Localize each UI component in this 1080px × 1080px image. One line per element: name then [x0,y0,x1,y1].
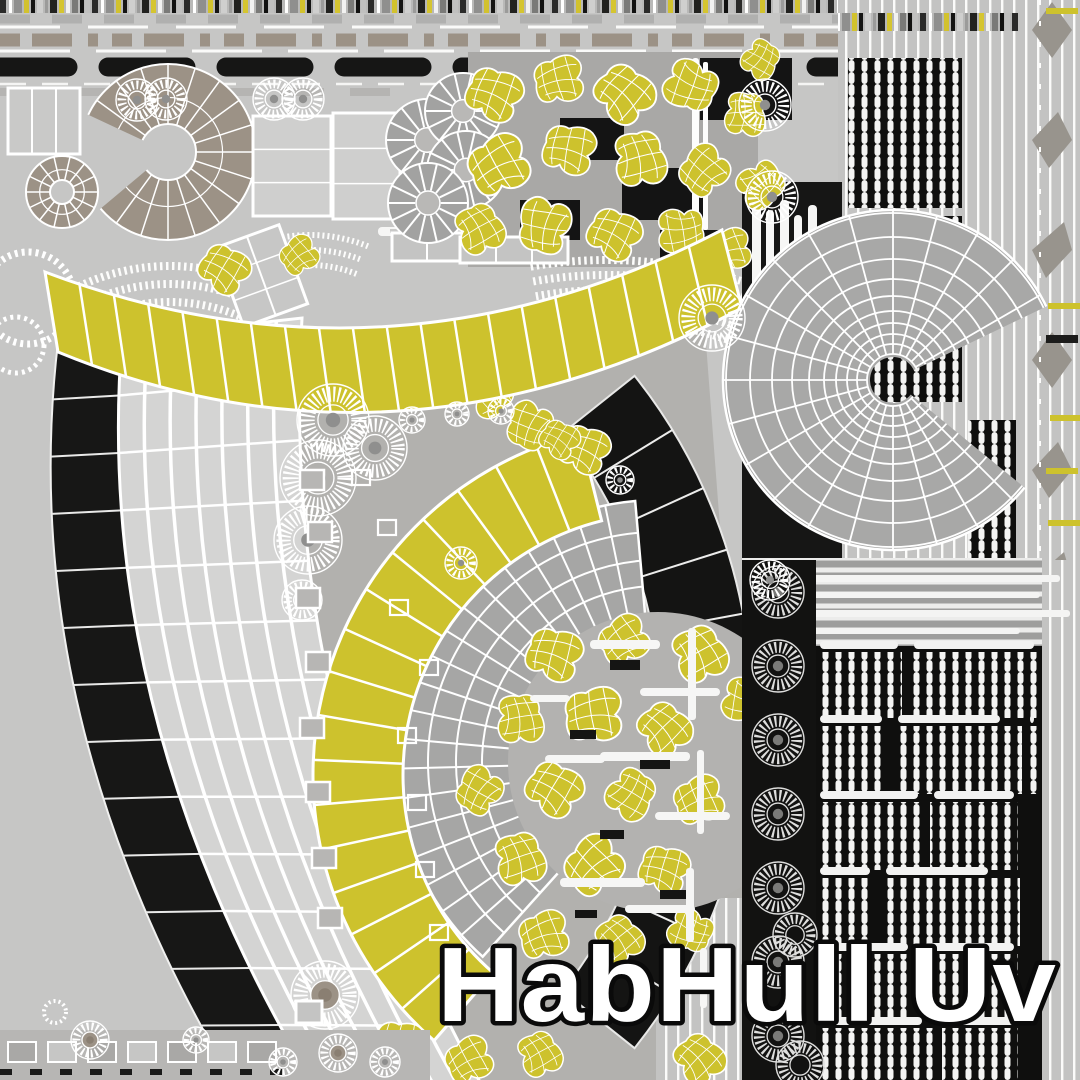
watermark-text: HabHull Uv [437,926,1057,1044]
radial-fan-island [723,210,1063,550]
uv-layout-canvas: HabHull Uv [0,0,1080,1080]
uv-map-preview: HabHull Uv [0,0,1080,1080]
